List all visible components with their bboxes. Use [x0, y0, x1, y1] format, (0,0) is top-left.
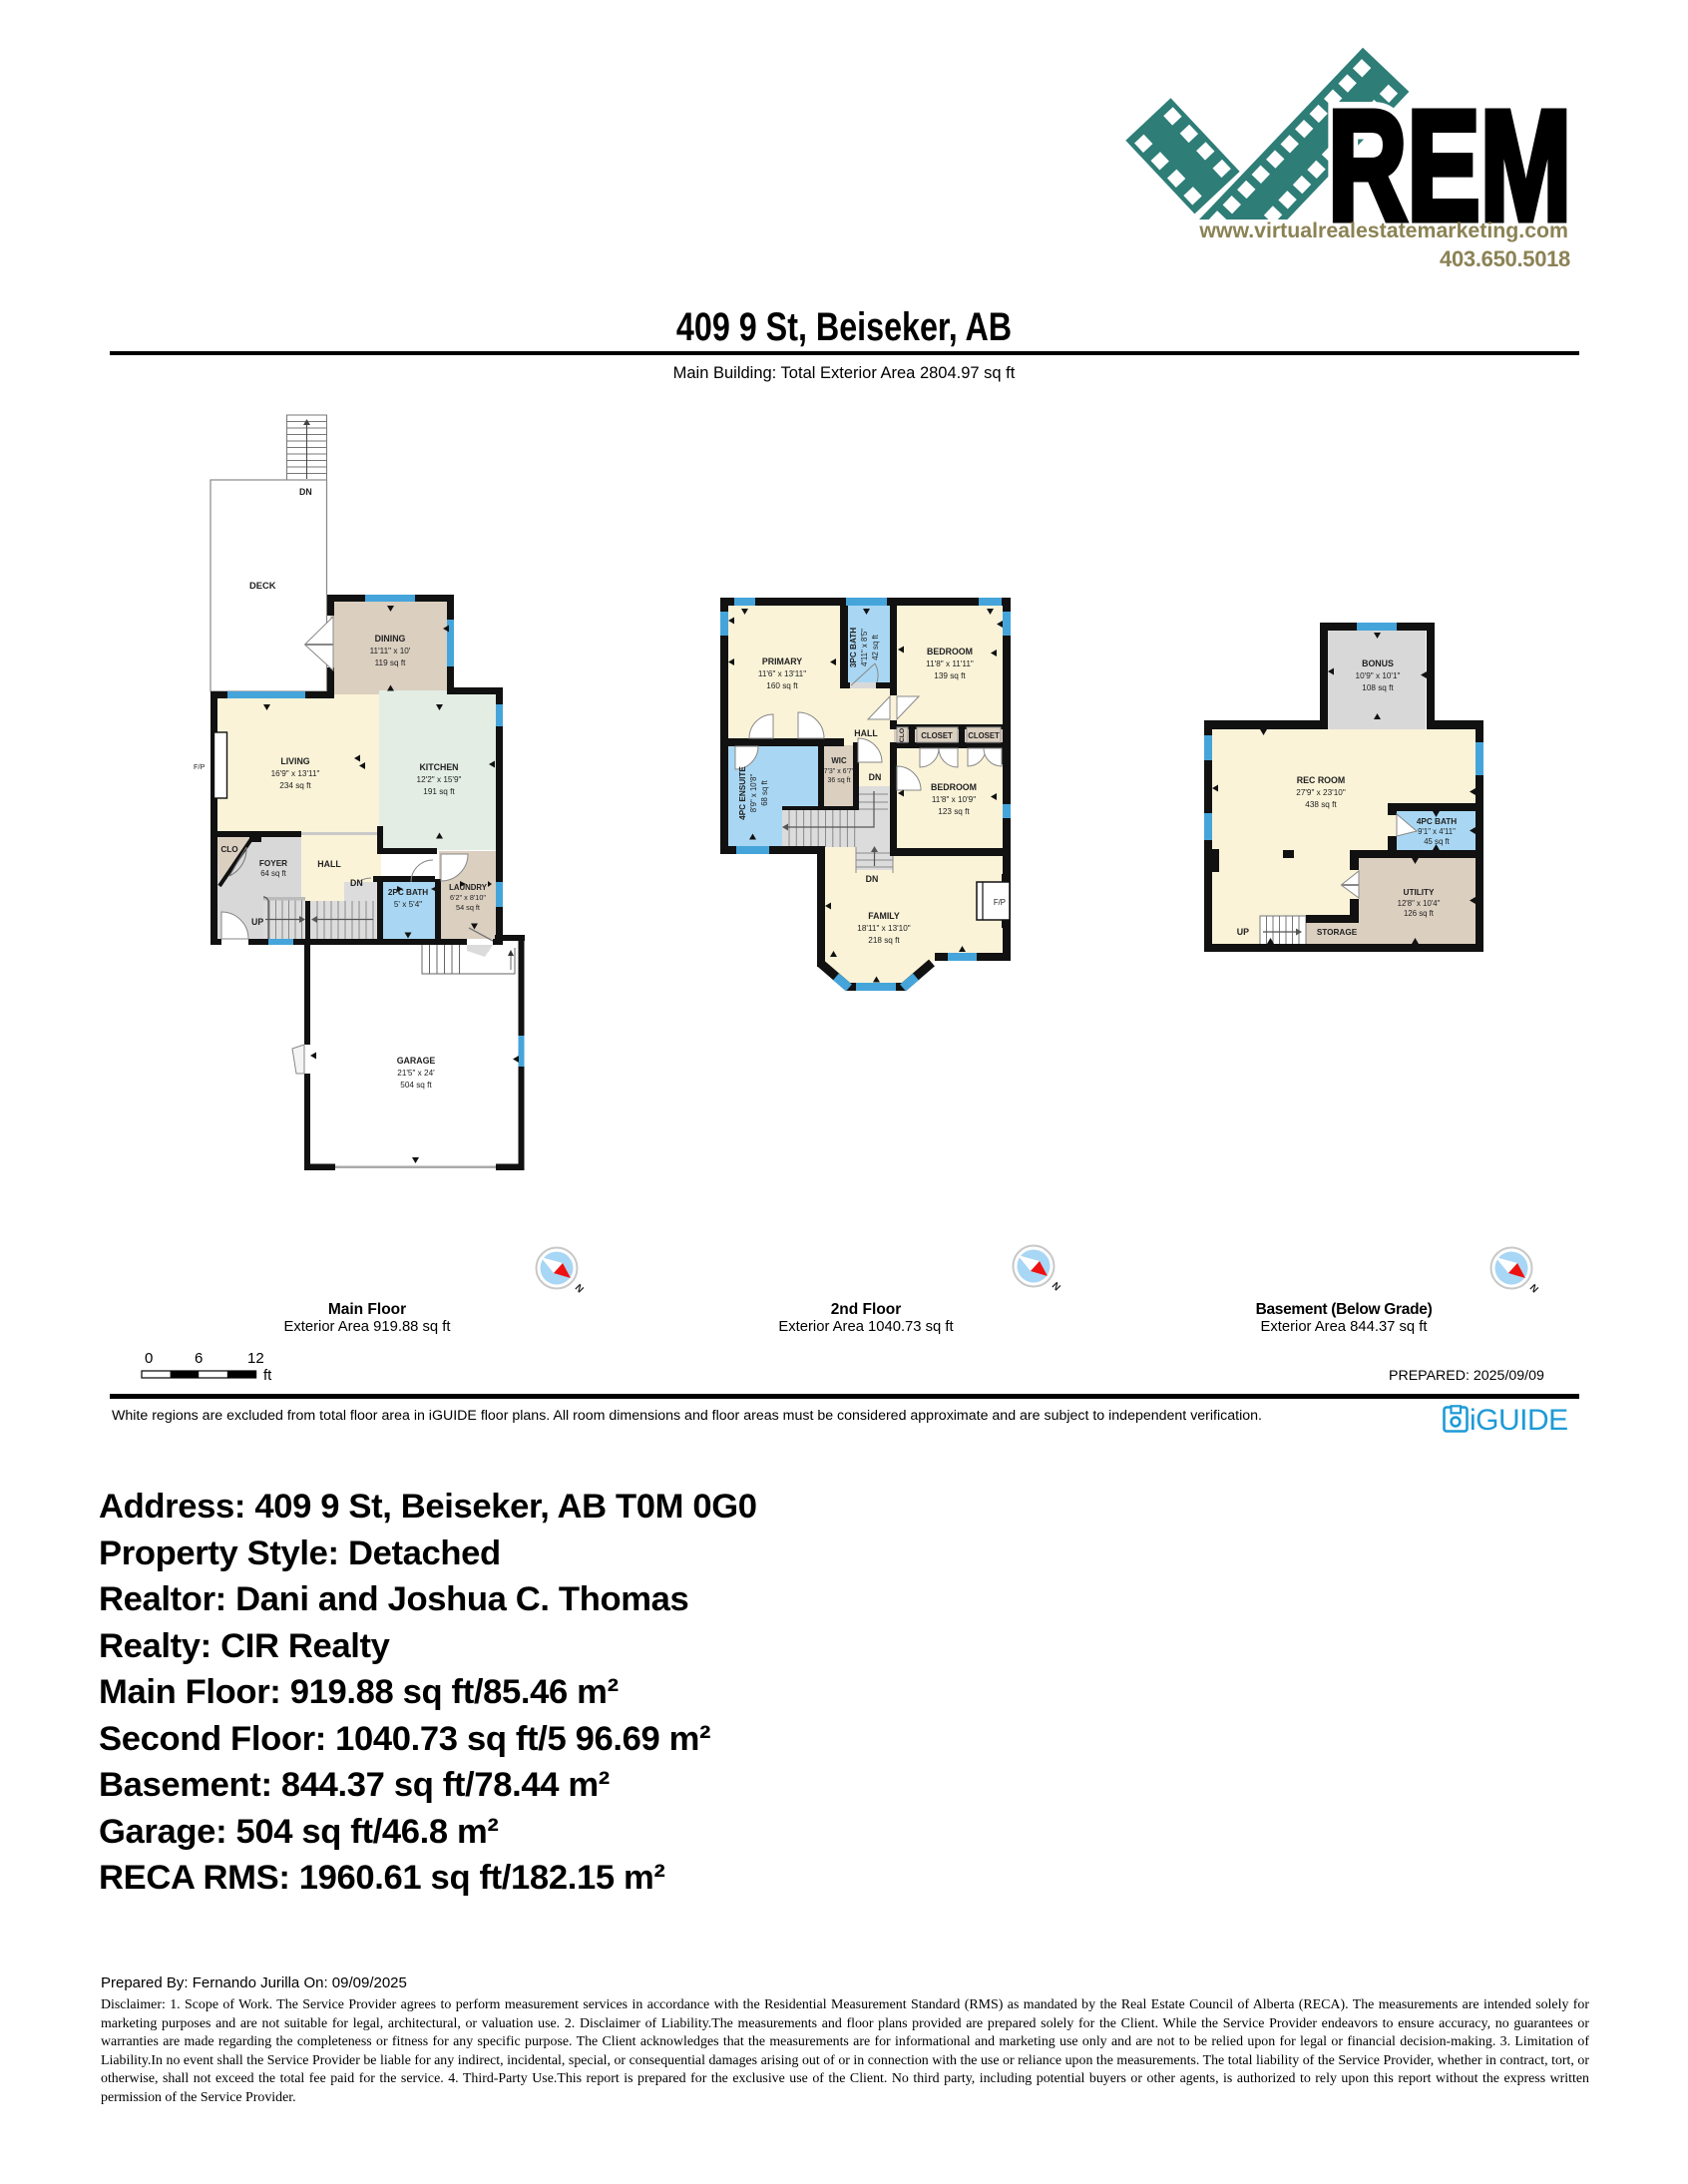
svg-text:3PC BATH: 3PC BATH — [849, 628, 858, 667]
svg-text:11'11" x 10': 11'11" x 10' — [370, 647, 411, 655]
svg-text:12'8" x 10'4": 12'8" x 10'4" — [1398, 899, 1441, 908]
svg-text:218 sq ft: 218 sq ft — [868, 936, 900, 945]
svg-text:0: 0 — [145, 1350, 153, 1367]
svg-text:F/P: F/P — [994, 898, 1006, 907]
svg-text:2PC BATH: 2PC BATH — [388, 888, 428, 897]
svg-text:HALL: HALL — [854, 728, 878, 738]
svg-text:438 sq ft: 438 sq ft — [1305, 800, 1337, 809]
svg-text:FOYER: FOYER — [259, 859, 287, 868]
svg-text:36 sq ft: 36 sq ft — [828, 777, 851, 784]
svg-text:11'8" x 10'9": 11'8" x 10'9" — [932, 795, 976, 804]
svg-text:CLO: CLO — [899, 728, 906, 742]
svg-text:54 sq ft: 54 sq ft — [456, 903, 480, 912]
svg-text:UP: UP — [251, 917, 263, 927]
svg-text:DN: DN — [866, 874, 879, 884]
svg-text:504 sq ft: 504 sq ft — [400, 1081, 432, 1090]
svg-text:234 sq ft: 234 sq ft — [279, 781, 311, 790]
svg-text:4PC ENSUITE: 4PC ENSUITE — [738, 766, 747, 820]
svg-text:HALL: HALL — [317, 859, 341, 869]
svg-text:KITCHEN: KITCHEN — [419, 762, 458, 772]
svg-text:8'9" x 10'8": 8'9" x 10'8" — [749, 774, 758, 813]
svg-text:N: N — [1527, 1282, 1540, 1295]
svg-text:www.virtualrealestatemarketing: www.virtualrealestatemarketing.com — [1198, 218, 1568, 242]
svg-text:DN: DN — [299, 487, 312, 497]
svg-text:126 sq ft: 126 sq ft — [1404, 909, 1435, 918]
svg-text:4PC BATH: 4PC BATH — [1417, 817, 1457, 826]
svg-text:108 sq ft: 108 sq ft — [1362, 683, 1394, 692]
svg-text:123 sq ft: 123 sq ft — [938, 807, 970, 816]
svg-text:DINING: DINING — [375, 634, 406, 644]
svg-text:N: N — [1050, 1280, 1062, 1293]
svg-text:9'1" x 4'11": 9'1" x 4'11" — [1418, 827, 1456, 836]
svg-text:DECK: DECK — [249, 580, 276, 591]
svg-text:6: 6 — [195, 1350, 203, 1367]
svg-text:16'9" x 13'11": 16'9" x 13'11" — [271, 769, 320, 778]
svg-text:WIC: WIC — [831, 756, 847, 765]
svg-text:21'5" x 24': 21'5" x 24' — [397, 1069, 435, 1078]
svg-text:UTILITY: UTILITY — [1404, 888, 1435, 897]
svg-text:4'11" x 8'5": 4'11" x 8'5" — [860, 629, 869, 666]
svg-text:11'6" x 13'11": 11'6" x 13'11" — [758, 669, 806, 678]
svg-text:7'3" x 6'7": 7'3" x 6'7" — [824, 768, 855, 775]
svg-text:27'9" x 23'10": 27'9" x 23'10" — [1296, 788, 1346, 797]
svg-text:FAMILY: FAMILY — [868, 911, 900, 921]
svg-text:F/P: F/P — [194, 762, 205, 771]
svg-text:6'2" x 8'10": 6'2" x 8'10" — [450, 893, 486, 902]
svg-text:iGUIDE: iGUIDE — [1470, 1404, 1568, 1437]
svg-text:CLOSET: CLOSET — [921, 731, 953, 740]
svg-text:403.650.5018: 403.650.5018 — [1440, 246, 1570, 271]
svg-text:18'11" x 13'10": 18'11" x 13'10" — [857, 924, 910, 933]
svg-text:139 sq ft: 139 sq ft — [934, 671, 966, 680]
svg-text:DN: DN — [350, 878, 363, 888]
svg-text:BONUS: BONUS — [1362, 658, 1394, 668]
svg-text:CLOSET: CLOSET — [968, 731, 1000, 740]
svg-text:68 sq ft: 68 sq ft — [760, 779, 769, 805]
svg-text:12: 12 — [247, 1350, 264, 1367]
svg-text:CLO: CLO — [220, 845, 238, 854]
svg-text:10'9" x 10'1": 10'9" x 10'1" — [1356, 671, 1401, 680]
svg-text:GARAGE: GARAGE — [397, 1056, 436, 1066]
svg-text:STORAGE: STORAGE — [1317, 928, 1358, 937]
svg-text:64 sq ft: 64 sq ft — [260, 869, 286, 878]
svg-text:LIVING: LIVING — [280, 756, 309, 766]
svg-text:45 sq ft: 45 sq ft — [1424, 837, 1450, 846]
svg-text:12'2" x 15'9": 12'2" x 15'9" — [417, 775, 462, 784]
svg-text:BEDROOM: BEDROOM — [931, 782, 977, 792]
svg-text:5' x 5'4": 5' x 5'4" — [394, 900, 422, 909]
svg-text:UP: UP — [1237, 927, 1249, 937]
svg-text:42 sq ft: 42 sq ft — [871, 634, 880, 659]
svg-text:11'8" x 11'11": 11'8" x 11'11" — [926, 659, 974, 668]
svg-text:REC ROOM: REC ROOM — [1297, 775, 1345, 785]
svg-text:LAUNDRY: LAUNDRY — [449, 883, 488, 892]
svg-text:N: N — [573, 1282, 586, 1295]
svg-text:119 sq ft: 119 sq ft — [375, 658, 407, 667]
svg-text:BEDROOM: BEDROOM — [927, 647, 973, 656]
svg-text:160 sq ft: 160 sq ft — [766, 681, 798, 690]
svg-text:ft: ft — [263, 1367, 272, 1384]
svg-text:PRIMARY: PRIMARY — [762, 656, 802, 666]
svg-text:191 sq ft: 191 sq ft — [423, 787, 455, 796]
svg-text:DN: DN — [869, 772, 882, 782]
